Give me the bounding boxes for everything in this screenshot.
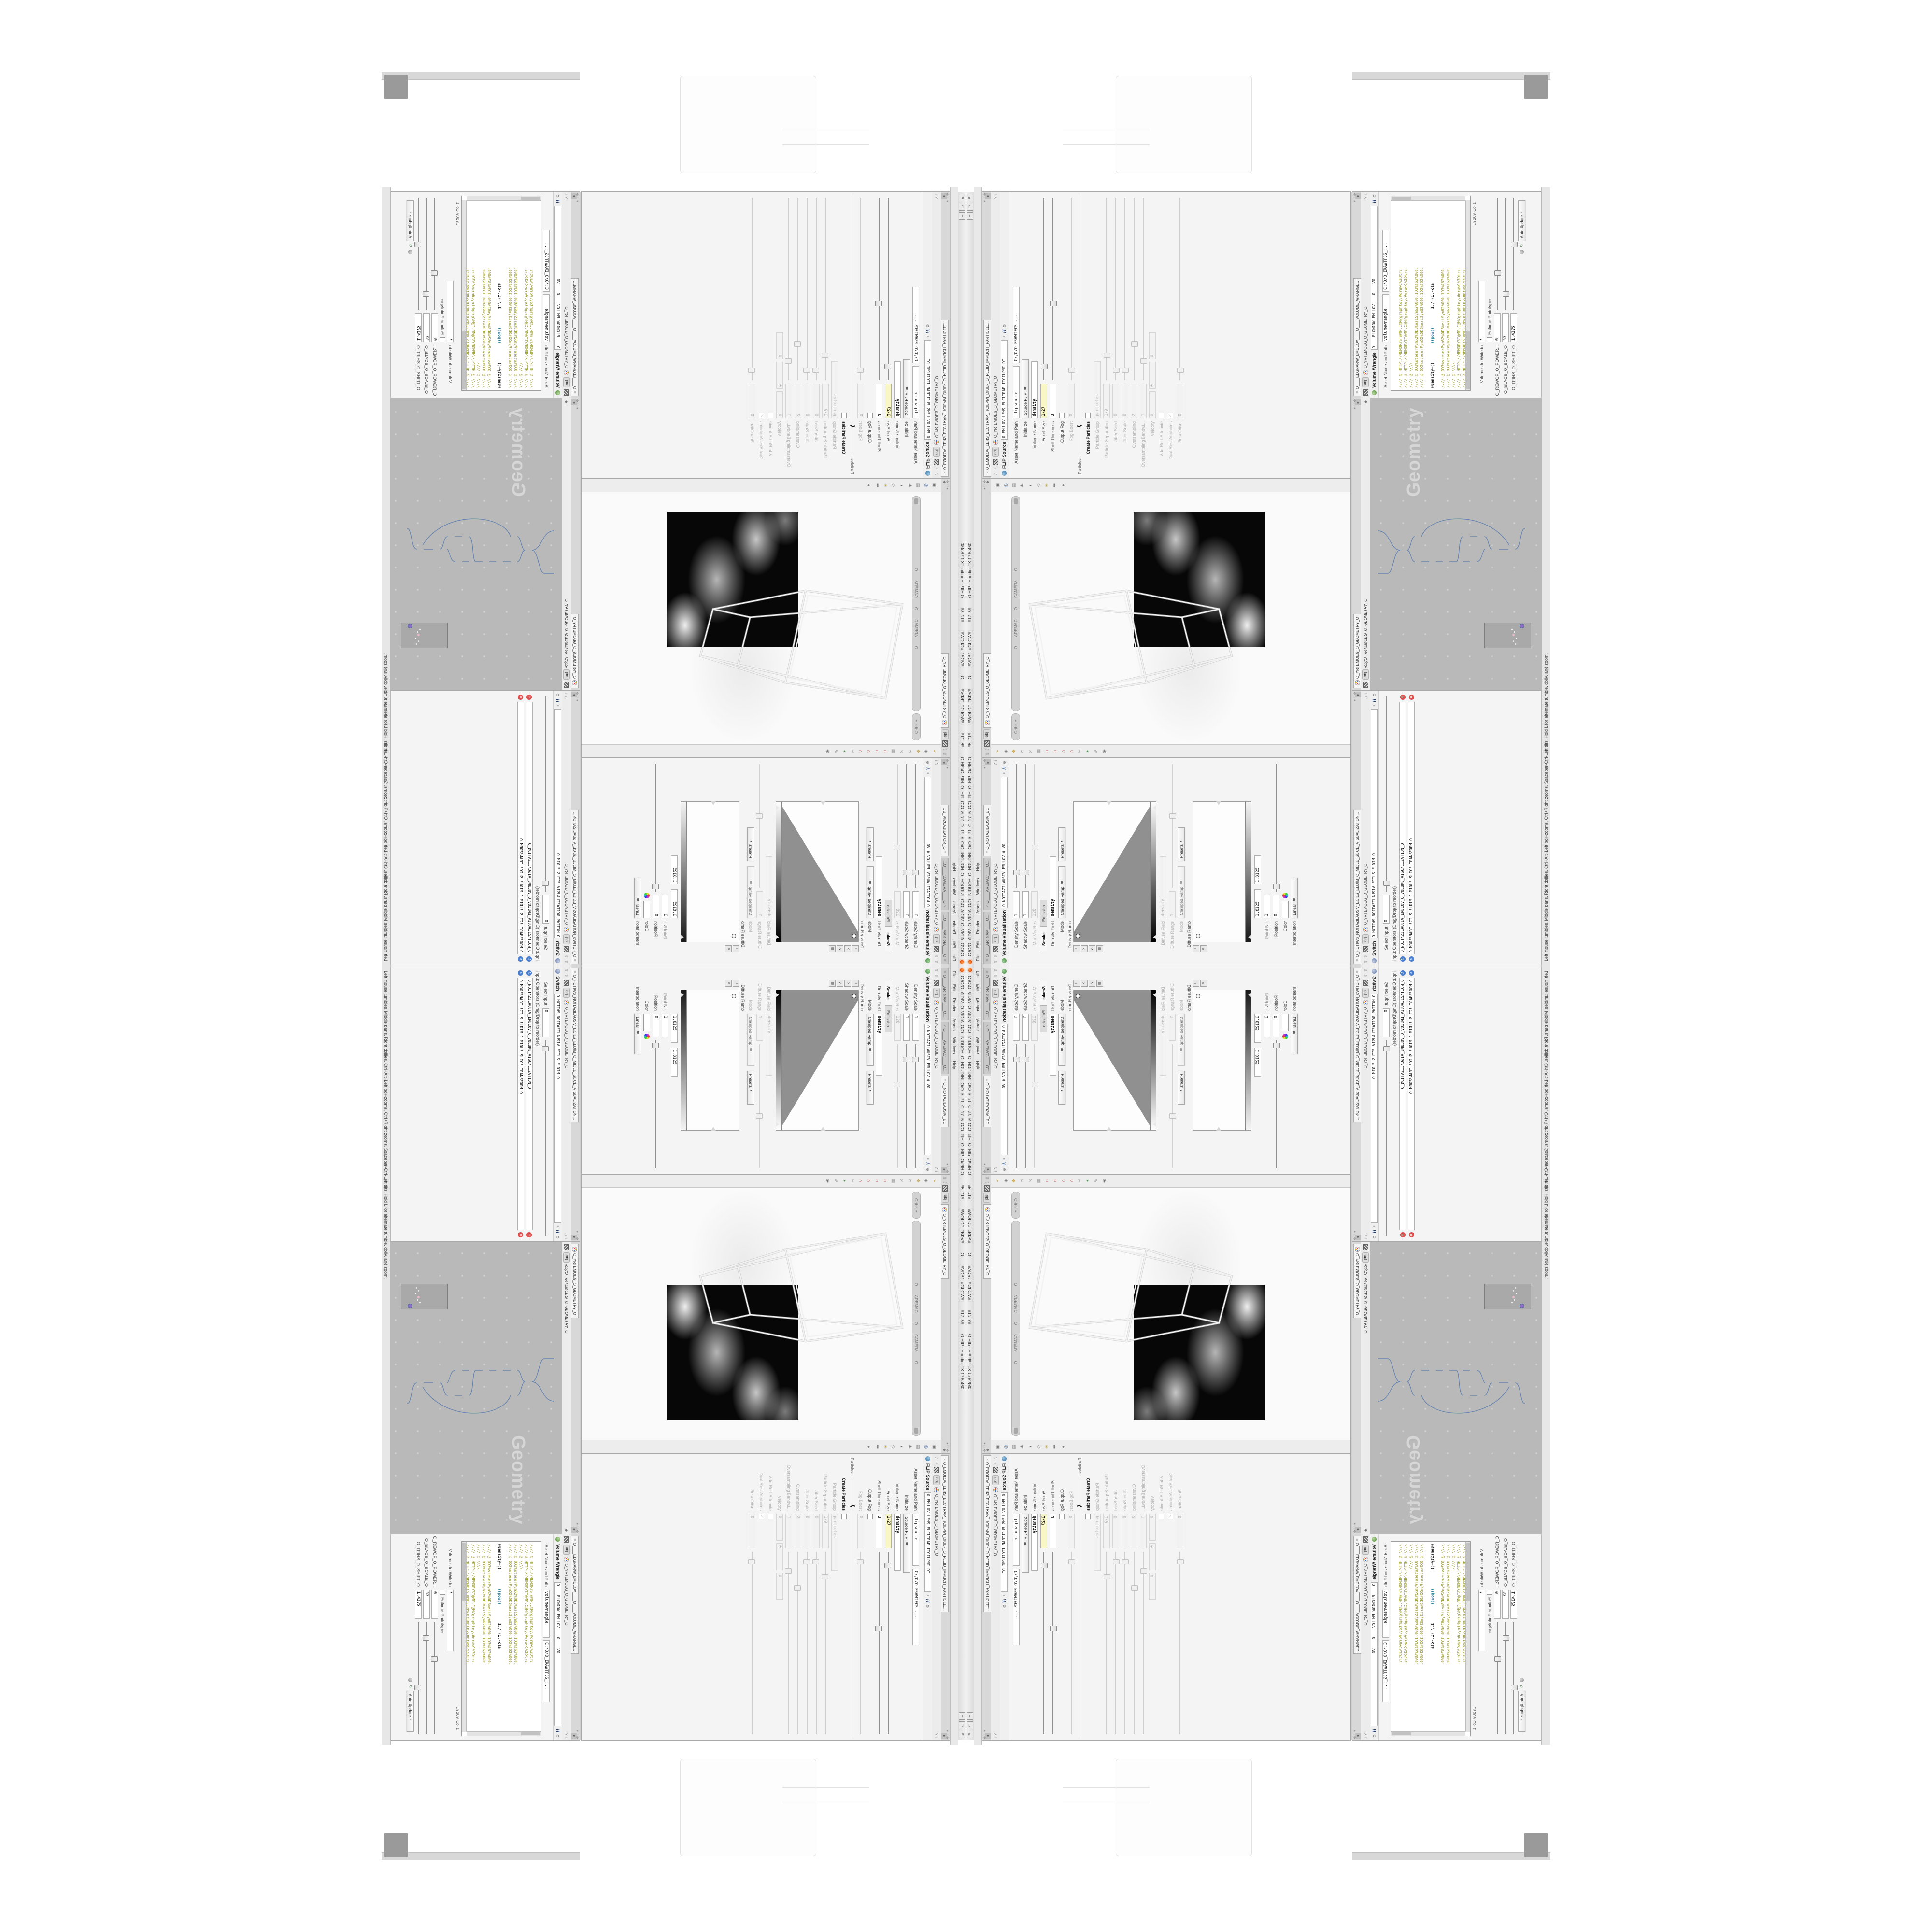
- network-minimap[interactable]: [401, 1284, 448, 1309]
- ramp-buttons[interactable]: ✛ ✕: [1193, 945, 1251, 952]
- snap-prim-icon[interactable]: ∩: [875, 1179, 880, 1182]
- power-field[interactable]: 6: [432, 1590, 439, 1619]
- select-tool-icon[interactable]: ➢: [995, 1179, 1000, 1183]
- obj-chip[interactable]: obj: [933, 447, 940, 457]
- info-icon[interactable]: i: [1364, 1737, 1368, 1738]
- camera-lock-icon[interactable]: ▤: [916, 483, 921, 488]
- asset-path-field[interactable]: C:/O/O_ERAWTFOS_...: [1382, 1640, 1389, 1702]
- back-icon[interactable]: ⇧: [1363, 960, 1368, 964]
- pin-icon[interactable]: ◆: [1364, 400, 1368, 403]
- network-path[interactable]: /obj/O_YRTEMOEG_O_GEOMETRY_O: [1364, 1264, 1368, 1334]
- fog-boost-field[interactable]: 0: [858, 1514, 865, 1548]
- network-tab[interactable]: O_YRTEMOEG_O_GEOMETRY_O: [571, 1244, 579, 1318]
- network-canvas[interactable]: Geometry: [390, 1242, 562, 1534]
- layout-icon[interactable]: ▣: [932, 1445, 937, 1449]
- network-minimap[interactable]: [1484, 1284, 1531, 1309]
- param-slider[interactable]: [786, 196, 792, 380]
- rotate-tool-icon[interactable]: ↻: [1020, 749, 1024, 753]
- ramp-delete-icon[interactable]: ✕: [725, 945, 732, 952]
- network-tab[interactable]: O_YRTEMOEG_O_GEOMETRY_O: [571, 614, 579, 688]
- ramp-grid-icon[interactable]: ▦: [829, 980, 836, 987]
- volume-name-field[interactable]: density: [895, 1514, 901, 1571]
- network-minimap[interactable]: [401, 623, 448, 648]
- enforce-prototypes-checkbox[interactable]: [440, 337, 445, 342]
- move-tool-icon[interactable]: ✥: [1011, 1179, 1016, 1183]
- view-menu-pill[interactable]: Ortho▾: [912, 1192, 921, 1219]
- pane-controls[interactable]: ▾□✛: [1353, 1730, 1357, 1739]
- snap-multi-icon[interactable]: ∩: [1069, 1179, 1074, 1182]
- create-particles-checkbox[interactable]: [841, 413, 847, 418]
- auto-update-menu[interactable]: Auto Update▾: [407, 1691, 414, 1732]
- forward-icon[interactable]: ⇩: [985, 748, 990, 752]
- forward-icon[interactable]: ⇩: [1363, 974, 1368, 978]
- param-slider[interactable]: [1104, 1552, 1109, 1736]
- param-field[interactable]: 1: [904, 891, 910, 918]
- velocity-z-field[interactable]: 0: [1149, 1573, 1156, 1600]
- ramp-delete-icon[interactable]: ✕: [844, 980, 851, 987]
- param-slider[interactable]: [750, 1552, 755, 1736]
- tab-mantra[interactable]: ✕O____ARTNAM____O...: [983, 912, 991, 964]
- title-bar[interactable]: C:/O/O_AIDIV_O_VIDIA_O/O_INIDUOH_O_HOUDI…: [958, 966, 966, 1740]
- shade-icon[interactable]: ◐: [899, 1445, 904, 1448]
- point-no-field[interactable]: 1: [1264, 895, 1270, 918]
- mode-menu[interactable]: Clamped Ramp◀▶: [867, 866, 874, 918]
- handles-tool-icon[interactable]: ◈: [1003, 750, 1008, 753]
- interp-menu[interactable]: Linear◀▶: [1291, 1014, 1298, 1054]
- snap-grid-icon[interactable]: ∩: [883, 750, 888, 753]
- particle-separation-field[interactable]: 1/9: [1103, 1514, 1110, 1548]
- gear-icon[interactable]: ⚙: [1002, 1605, 1007, 1608]
- presets-menu[interactable]: Presets▾: [1058, 827, 1065, 861]
- remove-input-icon[interactable]: ✕: [527, 1232, 532, 1237]
- back-icon[interactable]: ⇧: [934, 968, 939, 972]
- oversampling-bw-field[interactable]: 1: [786, 1514, 793, 1548]
- jitter-seed-field[interactable]: 0: [1112, 1514, 1119, 1548]
- param-field[interactable]: 1: [913, 1014, 920, 1041]
- snapshot-icon[interactable]: ●: [1061, 484, 1065, 486]
- velocity-x-field[interactable]: 0: [777, 391, 783, 418]
- jitter-scale-field[interactable]: 0: [804, 1514, 811, 1548]
- presets-menu[interactable]: Presets▾: [1058, 1071, 1065, 1105]
- power-field[interactable]: 6: [432, 313, 439, 342]
- param-slider[interactable]: [1494, 1622, 1500, 1736]
- scale-field[interactable]: 32: [1502, 1590, 1509, 1619]
- wrangle-name-field[interactable]: O____ELGNARW_EMULOV____O____VO: [1371, 1582, 1378, 1727]
- restore-button[interactable]: ▭: [959, 203, 966, 211]
- wrangle-name-field[interactable]: O____ELGNARW_EMULOV____O____VO: [554, 1582, 561, 1727]
- param-slider[interactable]: [1494, 196, 1500, 310]
- tab-smoke[interactable]: Smoke: [1040, 927, 1047, 951]
- switch-name-field[interactable]: O_HCTIWS_NOITAZILAUSIV_ECILS_ELDIM_O: [554, 994, 561, 1223]
- initialize-menu[interactable]: Source FLIP◀▶: [903, 1514, 910, 1573]
- volumes-field[interactable]: *: [1478, 281, 1485, 342]
- param-slider[interactable]: [543, 1040, 549, 1237]
- param-slider[interactable]: [805, 1552, 810, 1736]
- ramp-add-icon[interactable]: ✛: [852, 945, 859, 952]
- minimize-button[interactable]: –: [959, 1712, 966, 1720]
- velocity-y-field[interactable]: 0: [777, 1543, 783, 1570]
- network-canvas[interactable]: Geometry: [1370, 398, 1542, 690]
- back-icon[interactable]: ⇧: [993, 960, 998, 964]
- view-tool-icon[interactable]: ◉: [825, 749, 830, 753]
- forward-icon[interactable]: ⇩: [1363, 954, 1368, 958]
- param-field[interactable]: 1: [1022, 891, 1029, 918]
- gear-icon[interactable]: ⚙: [556, 693, 560, 696]
- jitter-seed-field[interactable]: 0: [813, 1514, 820, 1548]
- density-field[interactable]: density: [876, 856, 883, 918]
- view-menu-pill[interactable]: Ortho▾: [1011, 713, 1020, 740]
- tab-smoke[interactable]: Smoke: [885, 981, 892, 1005]
- back-icon[interactable]: ⇧: [985, 752, 990, 756]
- enforce-prototypes-checkbox[interactable]: [1487, 337, 1492, 342]
- tab-emission[interactable]: Emission: [885, 1005, 892, 1032]
- input-operator-field[interactable]: O_MROFSNART_ECILS_ELDIM_O_MIDLE_SLICE_TR…: [1408, 702, 1415, 954]
- jitter-seed-field[interactable]: 0: [813, 384, 820, 418]
- diffuse-range-field[interactable]: 1: [1169, 1014, 1176, 1041]
- param-slider[interactable]: [1169, 762, 1175, 888]
- oversampling-field[interactable]: 2: [795, 1514, 802, 1548]
- pane-controls[interactable]: ▾□✛: [945, 193, 949, 202]
- breadcrumb-node[interactable]: O_YRTEMOEG_O_GEOMETRY_O: [994, 1007, 998, 1069]
- help-icon[interactable]: ?: [935, 1167, 939, 1169]
- initialize-menu[interactable]: Source FLIP◀▶: [1022, 359, 1029, 418]
- position-field[interactable]: 0: [653, 895, 660, 918]
- tab-camera[interactable]: ✕O____AREMAC____O...: [983, 1022, 991, 1074]
- param-slider[interactable]: [1122, 1552, 1128, 1736]
- minimize-button[interactable]: –: [967, 1712, 973, 1720]
- param-field[interactable]: 128: [1031, 891, 1038, 918]
- param-slider[interactable]: [1013, 762, 1019, 888]
- back-icon[interactable]: ⇧: [934, 472, 939, 476]
- remove-input-icon[interactable]: ✕: [527, 695, 532, 700]
- add-rest-checkbox[interactable]: [768, 413, 773, 418]
- velocity-x-field[interactable]: 0: [1149, 391, 1156, 418]
- pane-controls[interactable]: ▾□✛: [575, 193, 579, 202]
- snap-grid-icon[interactable]: ∩: [1044, 750, 1049, 753]
- rest-offset-field[interactable]: 0: [749, 1514, 756, 1548]
- handles-tool-icon[interactable]: ◈: [1003, 1179, 1008, 1183]
- tab-camera[interactable]: ✕O____AREMAC____O...: [941, 858, 949, 910]
- param-slider[interactable]: [653, 762, 659, 892]
- info-icon[interactable]: i: [994, 1171, 998, 1172]
- pose-tool-icon[interactable]: ▦: [891, 749, 896, 753]
- snap-grid-icon[interactable]: ∩: [1044, 1179, 1049, 1182]
- volumes-field[interactable]: *: [447, 1590, 454, 1651]
- auto-update-menu[interactable]: Auto Update▾: [1518, 200, 1525, 241]
- pane-controls[interactable]: ▾□✛: [575, 1231, 579, 1240]
- search-icon[interactable]: ⌕: [925, 335, 930, 337]
- close-tab-icon[interactable]: ✕: [986, 1458, 989, 1461]
- tab-mantra[interactable]: ✕O____ARTNAM____O...: [941, 968, 949, 1020]
- param-slider[interactable]: [1140, 1552, 1146, 1736]
- param-slider[interactable]: [858, 1552, 864, 1736]
- snap-point-icon[interactable]: ∩: [1061, 1179, 1065, 1182]
- wrangle-tab[interactable]: ✕O____ELGNARW_EMULOV____O____VOLUME_WRAN…: [1353, 278, 1361, 396]
- color-wheel-icon[interactable]: [1282, 893, 1288, 898]
- minimize-button[interactable]: –: [959, 212, 966, 220]
- viewport-tab[interactable]: O_YRTEMOEG_O_GEOMETRY_O: [983, 1204, 991, 1279]
- ramp-side-handle[interactable]: [1216, 1127, 1221, 1131]
- density-field[interactable]: density: [876, 1014, 883, 1076]
- volume-name-field[interactable]: density: [895, 361, 901, 418]
- forward-icon[interactable]: ⇩: [993, 954, 998, 958]
- scale-field[interactable]: 32: [1502, 313, 1509, 342]
- move-tool-icon[interactable]: ✥: [1011, 749, 1016, 753]
- param-field[interactable]: 1: [1013, 891, 1020, 918]
- obj-chip[interactable]: obj: [942, 1193, 949, 1203]
- gear-icon[interactable]: ⚙: [1372, 1734, 1377, 1738]
- create-particles-checkbox[interactable]: [1085, 413, 1091, 418]
- presets-menu[interactable]: Presets▾: [1178, 827, 1185, 861]
- lights-icon[interactable]: ☀: [883, 483, 888, 487]
- param-slider[interactable]: [1383, 1040, 1389, 1237]
- search-icon[interactable]: ⌕: [555, 1225, 560, 1227]
- ramp-side-handle[interactable]: [711, 801, 716, 805]
- persp-icon[interactable]: ◎: [1003, 483, 1008, 487]
- forward-icon[interactable]: ⇩: [942, 1181, 947, 1185]
- menu-file[interactable]: File: [975, 954, 980, 961]
- dual-rest-checkbox[interactable]: ✓: [1168, 1514, 1173, 1519]
- fog-boost-field[interactable]: 0: [1068, 384, 1075, 418]
- output-fog-checkbox[interactable]: [1059, 413, 1065, 418]
- oversampling-field[interactable]: 2: [1131, 1514, 1137, 1548]
- help-icon[interactable]: ?: [1364, 1235, 1368, 1236]
- color-swatch[interactable]: [644, 1014, 651, 1031]
- sphere-icon[interactable]: [408, 1678, 412, 1682]
- ramp-marker[interactable]: [1153, 935, 1156, 939]
- search-icon[interactable]: ⌕: [1002, 1158, 1007, 1160]
- point-no-field[interactable]: 1: [662, 1014, 669, 1037]
- help-icon[interactable]: ?: [1364, 696, 1368, 697]
- ramp-marker[interactable]: [776, 806, 779, 810]
- help-icon[interactable]: ?: [565, 1733, 569, 1735]
- pane-controls[interactable]: ▾□✛: [575, 399, 579, 409]
- display-normals-icon[interactable]: ✚: [908, 483, 912, 487]
- close-tab-icon[interactable]: ✕: [943, 905, 946, 908]
- remove-input-icon[interactable]: ✕: [1409, 695, 1414, 700]
- volviz-name-field[interactable]: O_NOITAZILAUSIV_EMULOV_O_VO: [1001, 1024, 1008, 1155]
- network-tab[interactable]: O_YRTEMOEG_O_GEOMETRY_O: [1353, 1244, 1361, 1318]
- code-hscrollbar[interactable]: [462, 1542, 467, 1732]
- flip-tab[interactable]: ✕O_EMULOV_LEHS_ELCITRAP_TICILPMI_DIULF_O…: [983, 1455, 991, 1612]
- gear-icon[interactable]: ⚙: [556, 1236, 560, 1239]
- menu-edit[interactable]: Edit: [975, 941, 980, 948]
- snap-multi-icon[interactable]: ∩: [858, 750, 863, 753]
- select-input-field[interactable]: 0: [543, 895, 550, 924]
- close-tab-icon[interactable]: ✕: [943, 1458, 946, 1461]
- volviz-name-field[interactable]: O_NOITAZILAUSIV_EMULOV_O_VO: [924, 1024, 931, 1155]
- vexpression-editor[interactable]: //// @ HTTP://MEMORYST@MP.C@M/graphtoy/#…: [1391, 1541, 1471, 1736]
- ramp-flip-icon[interactable]: ◭: [1089, 980, 1095, 987]
- range-b-field[interactable]: 1.8125: [671, 1048, 678, 1077]
- asset-name-field[interactable]: volumewrangle: [1382, 294, 1389, 342]
- ramp-delete-icon[interactable]: ✕: [1081, 980, 1088, 987]
- asset-path-field[interactable]: C:/O/O_ERAWTFOS_...: [913, 1569, 920, 1645]
- menu-assets[interactable]: Assets: [952, 1018, 957, 1031]
- search-icon[interactable]: ⌕: [1002, 1594, 1007, 1596]
- title-bar[interactable]: C:/O/O_AIDIV_O_VIDIA_O/O_INIDUOH_O_HOUDI…: [966, 966, 974, 1740]
- tray-icon[interactable]: [384, 75, 408, 99]
- range-a-field[interactable]: 1.8125: [671, 889, 678, 918]
- menu-render[interactable]: Render: [952, 998, 957, 1011]
- presets-menu[interactable]: Presets▾: [1178, 1071, 1185, 1105]
- input-operator-field[interactable]: O_NOITAZILAUSIV_EMULOV_O_VOLUME_VISUALIZ…: [1399, 702, 1406, 954]
- volumes-field[interactable]: *: [447, 281, 454, 342]
- gear-icon[interactable]: ⚙: [556, 1734, 560, 1738]
- camera-lock-icon[interactable]: ▤: [916, 1445, 921, 1449]
- breadcrumb-node[interactable]: O_YRTEMOEG_O_GEOMETRY_O: [994, 863, 998, 925]
- velocity-y-field[interactable]: 0: [1149, 1543, 1156, 1570]
- menu-windows[interactable]: Windows: [975, 878, 980, 895]
- diffuse-field[interactable]: density: [766, 856, 773, 918]
- handles-tool-icon[interactable]: ◈: [924, 750, 929, 753]
- gear-icon[interactable]: ⚙: [926, 1605, 930, 1608]
- grid-icon[interactable]: ☰: [875, 483, 880, 487]
- ramp-point[interactable]: [732, 994, 736, 998]
- close-tab-icon[interactable]: ✕: [986, 1024, 989, 1027]
- shell-thickness-field[interactable]: 3: [1050, 1514, 1056, 1548]
- pane-controls[interactable]: ▾□✛: [945, 480, 949, 490]
- info-icon[interactable]: i: [565, 693, 569, 694]
- menu-help[interactable]: Help: [975, 863, 980, 871]
- view-menu-pill[interactable]: Ortho▾: [1011, 1192, 1020, 1219]
- help-icon[interactable]: ?: [994, 763, 998, 765]
- jump-to-operator-icon[interactable]: ↻: [518, 970, 524, 976]
- tray-icon[interactable]: [1524, 75, 1548, 99]
- cut-tool-icon[interactable]: ✄: [1077, 1179, 1082, 1183]
- ramp-add-icon[interactable]: ✛: [1073, 980, 1080, 987]
- breadcrumb-node[interactable]: O_YRTEMOEG_O_GEOMETRY_O: [1364, 863, 1368, 925]
- view-tool-icon[interactable]: ◉: [1102, 749, 1107, 753]
- param-slider[interactable]: [823, 196, 829, 380]
- scale-field[interactable]: 32: [424, 313, 430, 342]
- fog-boost-field[interactable]: 0: [1068, 1514, 1075, 1548]
- density-ramp-widget[interactable]: [776, 801, 859, 942]
- diffuse-field[interactable]: density: [1160, 856, 1166, 918]
- scale-tool-icon[interactable]: ⤧: [899, 1179, 904, 1182]
- wire-icon[interactable]: ◇: [891, 1445, 896, 1449]
- switch-tab[interactable]: ✕O_HCTIWS_NOITAZILAUSIV_ECILS_ELDIM_O_MI…: [571, 968, 579, 1122]
- input-operator-field[interactable]: O_NOITAZILAUSIV_EMULOV_O_VOLUME_VISUALIZ…: [526, 702, 533, 954]
- tab-volviz[interactable]: ✕O_NOITAZILAUSIV_E...: [941, 805, 949, 856]
- close-tab-icon[interactable]: ✕: [1356, 391, 1359, 393]
- ramp-flip-icon[interactable]: ◭: [1089, 945, 1095, 952]
- param-slider[interactable]: [895, 762, 901, 888]
- asset-name-field[interactable]: flipsource: [1013, 366, 1020, 418]
- search-icon[interactable]: ⌕: [555, 705, 560, 707]
- pane-controls[interactable]: ▾□✛: [983, 1730, 987, 1739]
- camera-selector-pill[interactable]: O____AREMAC____O____CAMERA____O: [1011, 496, 1020, 711]
- param-slider[interactable]: [432, 196, 438, 310]
- shade-icon[interactable]: ◐: [1028, 1445, 1033, 1448]
- param-slider[interactable]: [1503, 1622, 1508, 1736]
- gear-icon[interactable]: ⚙: [1372, 693, 1377, 696]
- vexpression-editor[interactable]: //// @ HTTP://MEMORYST@MP.C@M/graphtoy/#…: [1391, 196, 1471, 391]
- cut-tool-icon[interactable]: ✄: [850, 1179, 855, 1183]
- viewport-framebuffer[interactable]: Ortho▾ O____AREMAC____O____CAMERA____O: [991, 492, 1350, 744]
- diffuse-ramp-widget[interactable]: [681, 801, 739, 942]
- param-field[interactable]: 1: [913, 891, 920, 918]
- close-button[interactable]: ✕: [967, 1731, 973, 1738]
- jitter-seed-field[interactable]: 0: [1112, 384, 1119, 418]
- param-slider[interactable]: [805, 196, 810, 380]
- param-field[interactable]: 128: [1031, 1014, 1038, 1041]
- snap-multi-icon[interactable]: ∩: [1069, 750, 1074, 753]
- ramp-buttons[interactable]: ✛ ✕ ◭ ▦: [1073, 945, 1156, 952]
- dual-rest-checkbox[interactable]: ✓: [1168, 413, 1173, 418]
- param-slider[interactable]: [757, 1044, 763, 1170]
- sphere-icon[interactable]: [408, 250, 412, 254]
- pane-controls[interactable]: ▾□✛: [983, 759, 987, 769]
- ramp-marker[interactable]: [1153, 993, 1156, 997]
- snap-prim-icon[interactable]: ∩: [875, 750, 880, 753]
- close-tab-icon[interactable]: ✕: [943, 471, 946, 474]
- grid-icon[interactable]: ☰: [1052, 483, 1057, 487]
- output-fog-checkbox[interactable]: [867, 413, 873, 418]
- tab-emission[interactable]: Emission: [1040, 900, 1047, 927]
- breadcrumb-node[interactable]: O_YRTEMOEG_O_GEOMETRY_O: [994, 376, 998, 438]
- particle-group-field[interactable]: particles: [832, 361, 838, 418]
- param-slider[interactable]: [796, 196, 801, 380]
- obj-chip[interactable]: obj: [933, 1475, 940, 1485]
- param-slider[interactable]: [886, 196, 892, 380]
- persp-icon[interactable]: ◎: [1003, 1445, 1008, 1449]
- flip-name-field[interactable]: O_EMULOV_LEHS_ELCITRAP_TICILPMI_DI: [1001, 1492, 1008, 1592]
- particle-separation-field[interactable]: 1/9: [823, 384, 829, 418]
- wire-icon[interactable]: ◇: [1036, 1445, 1041, 1449]
- info-icon[interactable]: i: [994, 1737, 998, 1738]
- breadcrumb-node[interactable]: O_YRTEMOEG_O_GEOMETRY_O: [994, 1494, 998, 1556]
- wrangle-tab[interactable]: ✕O____ELGNARW_EMULOV____O____VOLUME_WRAN…: [571, 1536, 579, 1654]
- gear-icon[interactable]: ⚙: [556, 194, 560, 198]
- flip-tab[interactable]: ✕O_EMULOV_LEHS_ELCITRAP_TICILPMI_DIULF_O…: [941, 320, 949, 477]
- asset-path-field[interactable]: C:/O/O_ERAWTFOS_...: [543, 230, 550, 292]
- close-tab-icon[interactable]: ✕: [573, 391, 576, 393]
- snap-point-icon[interactable]: ∩: [1061, 750, 1065, 753]
- restore-button[interactable]: ▭: [959, 1721, 966, 1729]
- add-rest-checkbox[interactable]: [768, 1514, 773, 1519]
- display-normals-icon[interactable]: ✚: [1020, 1445, 1024, 1449]
- view-menu-pill[interactable]: Ortho▾: [912, 713, 921, 740]
- snapshot-icon[interactable]: ●: [1061, 1445, 1065, 1448]
- ramp-buttons[interactable]: ✛ ✕: [681, 945, 739, 952]
- point-no-field[interactable]: 1: [1264, 1014, 1270, 1037]
- code-vscrollbar[interactable]: [1391, 196, 1465, 201]
- menu-help[interactable]: Help: [952, 1061, 957, 1069]
- star-tool-icon[interactable]: ✶: [1085, 749, 1090, 753]
- close-tab-icon[interactable]: ✕: [986, 1079, 989, 1081]
- range-b-field[interactable]: 1.8125: [1254, 1048, 1261, 1077]
- breadcrumb-node[interactable]: O_YRTEMOEG_O_GEOMETRY_O: [565, 307, 569, 369]
- restore-button[interactable]: ▭: [967, 203, 973, 211]
- shell-thickness-field[interactable]: 3: [876, 384, 883, 418]
- ramp-point[interactable]: [1196, 934, 1200, 938]
- ramp-buttons[interactable]: ✛ ✕ ◭ ▦: [1073, 980, 1156, 987]
- asset-path-field[interactable]: C:/O/O_ERAWTFOS_...: [913, 287, 920, 363]
- info-icon[interactable]: i: [994, 760, 998, 761]
- ramp-flip-icon[interactable]: ◭: [837, 980, 843, 987]
- jump-to-operator-icon[interactable]: ↻: [1409, 956, 1414, 962]
- param-slider[interactable]: [1023, 1044, 1028, 1170]
- gear-icon[interactable]: ⚙: [1372, 194, 1377, 198]
- back-icon[interactable]: ⇧: [993, 968, 998, 972]
- velocity-z-field[interactable]: 0: [777, 332, 783, 359]
- obj-chip[interactable]: obj: [563, 988, 570, 998]
- lights-icon[interactable]: ☀: [1044, 1445, 1049, 1449]
- ramp-side-handle[interactable]: [821, 801, 825, 805]
- asset-path-field[interactable]: C:/O/O_ERAWTFOS_...: [1013, 1569, 1020, 1645]
- ramp-marker[interactable]: [1248, 993, 1251, 997]
